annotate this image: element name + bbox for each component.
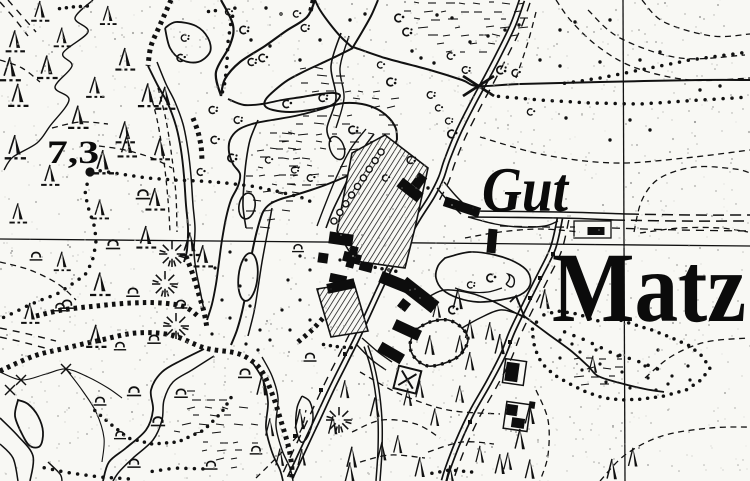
- svg-text:7,3: 7,3: [47, 135, 99, 171]
- svg-text:Matz: Matz: [552, 232, 746, 343]
- svg-text:Gut: Gut: [482, 154, 570, 225]
